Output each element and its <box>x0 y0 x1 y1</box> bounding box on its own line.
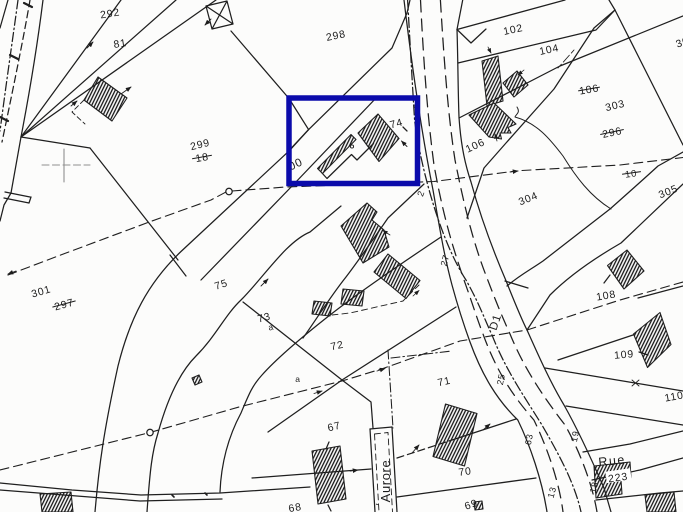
svg-text:Aurore: Aurore <box>378 460 393 503</box>
svg-text:10: 10 <box>624 168 638 181</box>
svg-text:Rue: Rue <box>598 453 627 470</box>
svg-text:68: 68 <box>288 501 303 512</box>
svg-text:109: 109 <box>614 348 635 362</box>
svg-text:a: a <box>295 374 301 384</box>
svg-text:81: 81 <box>113 37 128 51</box>
svg-text:70: 70 <box>458 465 473 479</box>
